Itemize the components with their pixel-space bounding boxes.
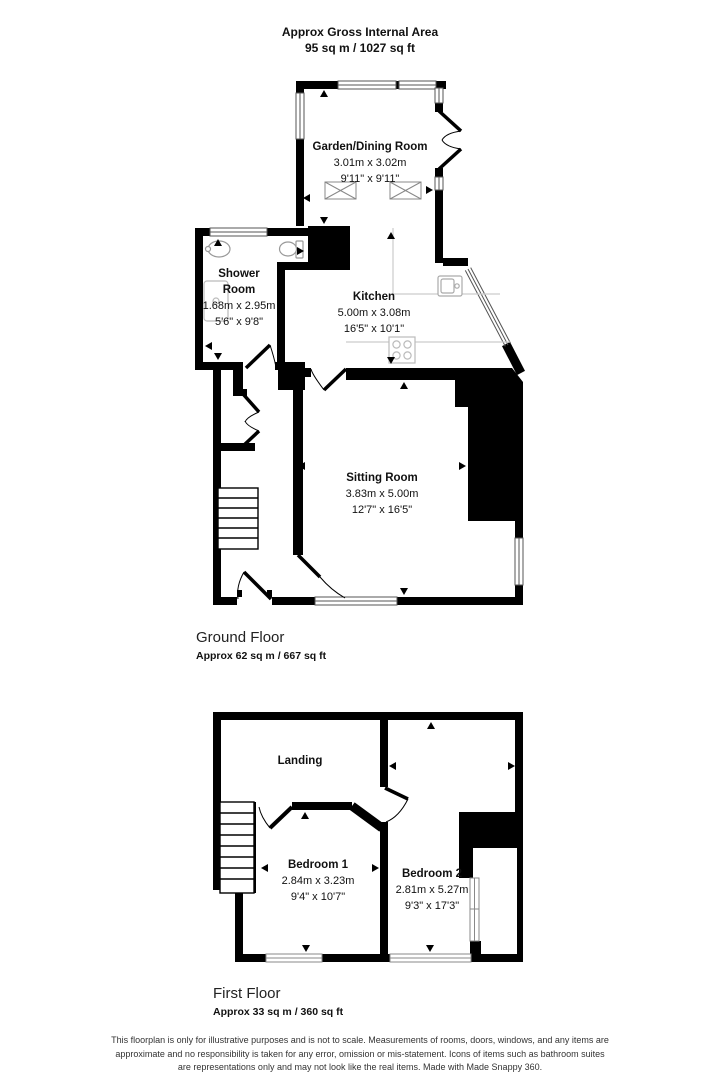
room-label-kitchen: Kitchen 5.00m x 3.08m 16'5" x 10'1" bbox=[338, 289, 411, 337]
french-doors bbox=[439, 111, 461, 169]
room-label-landing: Landing bbox=[278, 753, 323, 769]
room-name: Shower Room bbox=[202, 266, 276, 298]
room-metric: 2.84m x 3.23m bbox=[282, 873, 355, 889]
gross-internal-area-header: Approx Gross Internal Area 95 sq m / 102… bbox=[0, 24, 720, 56]
bedroom2-door bbox=[385, 788, 408, 822]
room-name: Bedroom 2 bbox=[396, 866, 469, 882]
room-label-bedroom1: Bedroom 1 2.84m x 3.23m 9'4" x 10'7" bbox=[282, 857, 355, 905]
entrance-door bbox=[238, 572, 271, 599]
room-metric: 2.81m x 5.27m bbox=[396, 882, 469, 898]
disclaimer-line3: are representations only and may not loo… bbox=[80, 1061, 640, 1075]
room-metric: 3.01m x 3.02m bbox=[313, 155, 428, 171]
room-name: Garden/Dining Room bbox=[313, 139, 428, 155]
floorplan-page: Approx Gross Internal Area 95 sq m / 102… bbox=[0, 0, 720, 1080]
room-label-bedroom2: Bedroom 2 2.81m x 5.27m 9'3" x 17'3" bbox=[396, 866, 469, 914]
first-floor-plan bbox=[213, 712, 523, 962]
room-name: Landing bbox=[278, 753, 323, 769]
room-label-sitting-room: Sitting Room 3.83m x 5.00m 12'7" x 16'5" bbox=[346, 470, 419, 518]
room-name: Bedroom 1 bbox=[282, 857, 355, 873]
header-line2: 95 sq m / 1027 sq ft bbox=[0, 40, 720, 56]
hall-sitting-door bbox=[298, 555, 345, 598]
room-metric: 5.00m x 3.08m bbox=[338, 305, 411, 321]
shower-room-door bbox=[246, 345, 276, 368]
kitchen-sitting-door bbox=[311, 369, 346, 390]
kitchen-sink-icon bbox=[438, 276, 462, 296]
room-imperial: 9'11" x 9'11" bbox=[313, 171, 428, 187]
disclaimer-line2: approximate and no responsibility is tak… bbox=[80, 1048, 640, 1062]
room-imperial: 9'4" x 10'7" bbox=[282, 889, 355, 905]
room-metric: 3.83m x 5.00m bbox=[346, 486, 419, 502]
bedroom1-door bbox=[259, 807, 292, 828]
floor-title: Ground Floor bbox=[196, 628, 326, 647]
header-line1: Approx Gross Internal Area bbox=[0, 24, 720, 40]
hall-lobby-doors bbox=[243, 394, 259, 446]
room-metric: 1.68m x 2.95m bbox=[202, 298, 276, 314]
ground-floor-caption: Ground Floor Approx 62 sq m / 667 sq ft bbox=[196, 628, 326, 662]
disclaimer-line1: This floorplan is only for illustrative … bbox=[80, 1034, 640, 1048]
room-imperial: 9'3" x 17'3" bbox=[396, 898, 469, 914]
room-label-shower-room: Shower Room 1.68m x 2.95m 5'6" x 9'8" bbox=[202, 266, 276, 330]
ground-stairs bbox=[218, 488, 258, 549]
room-name: Kitchen bbox=[338, 289, 411, 305]
room-imperial: 12'7" x 16'5" bbox=[346, 502, 419, 518]
first-stairs bbox=[220, 802, 254, 893]
floor-title: First Floor bbox=[213, 984, 343, 1003]
floor-area: Approx 33 sq m / 360 sq ft bbox=[213, 1006, 343, 1018]
room-name: Sitting Room bbox=[346, 470, 419, 486]
kitchen-angled-window bbox=[465, 268, 510, 347]
room-imperial: 5'6" x 9'8" bbox=[202, 314, 276, 330]
room-imperial: 16'5" x 10'1" bbox=[338, 321, 411, 337]
room-label-garden-dining: Garden/Dining Room 3.01m x 3.02m 9'11" x… bbox=[313, 139, 428, 187]
disclaimer-text: This floorplan is only for illustrative … bbox=[80, 1034, 640, 1075]
first-floor-caption: First Floor Approx 33 sq m / 360 sq ft bbox=[213, 984, 343, 1018]
floor-area: Approx 62 sq m / 667 sq ft bbox=[196, 650, 326, 662]
